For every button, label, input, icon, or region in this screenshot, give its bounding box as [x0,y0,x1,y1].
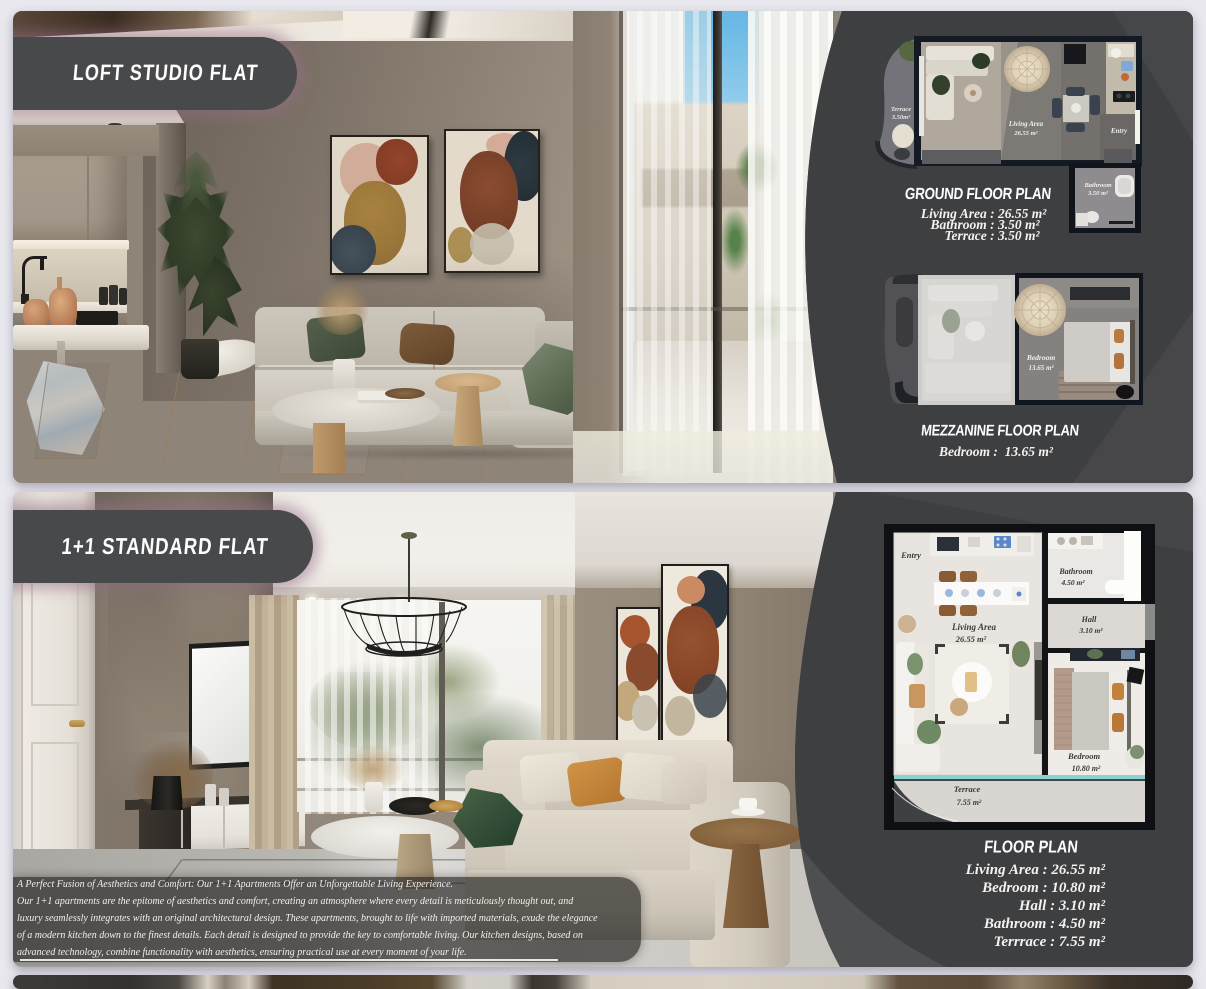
svg-text:Terrace: Terrace [891,106,911,113]
svg-text:10.80 m²: 10.80 m² [1072,764,1101,773]
svg-text:13.65 m²: 13.65 m² [1028,364,1054,372]
svg-text:Entry: Entry [900,550,921,560]
svg-text:Entry: Entry [1110,127,1128,135]
svg-text:4.50 m²: 4.50 m² [1060,578,1085,587]
svg-text:Hall: Hall [1081,615,1097,624]
svg-text:Living Area: Living Area [951,622,996,632]
svg-text:Bathroom: Bathroom [1058,567,1092,576]
svg-text:26.55 m²: 26.55 m² [1013,130,1038,137]
svg-text:3.10 m²: 3.10 m² [1078,626,1103,635]
svg-text:Terrace: Terrace [954,784,981,794]
svg-text:26.55 m²: 26.55 m² [955,634,987,644]
svg-text:7.55 m²: 7.55 m² [957,798,982,807]
svg-text:Bedroom: Bedroom [1026,353,1056,362]
svg-text:3.50m²: 3.50m² [891,114,911,121]
svg-text:Bedroom: Bedroom [1067,751,1101,761]
svg-text:Living Area: Living Area [1008,120,1044,128]
